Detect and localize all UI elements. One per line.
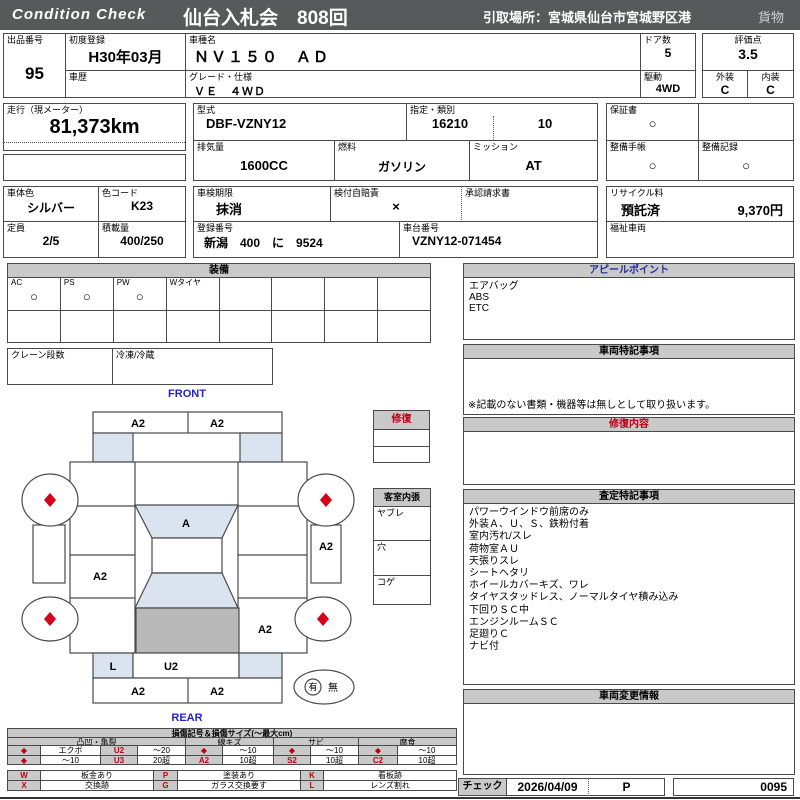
legend-desc: 20超: [137, 755, 186, 765]
assessment-line: 室内汚れ/スレ: [469, 531, 789, 543]
rear-window: [135, 573, 238, 608]
legend-desc: 10超: [222, 755, 274, 765]
legend-desc: ガラス交換要す: [177, 780, 301, 791]
equipment-cell-empty-3: [325, 277, 378, 310]
appeal-line: ABS: [469, 292, 789, 303]
equipment-cell-wtire: Wタイヤ: [167, 277, 220, 310]
color-code-label: 色コード: [99, 187, 185, 199]
warranty-book-cell: 保証書 ○: [606, 103, 699, 141]
equipment-row2-cell: [220, 311, 273, 343]
sill-right: [311, 525, 341, 583]
score-label: 評価点: [703, 34, 793, 46]
registration-number-value: 新潟 400 に 9524: [194, 234, 399, 251]
front-corner-right: [240, 433, 282, 462]
vehicle-change-header: 車両変更情報: [464, 690, 794, 704]
legend-code: S2: [273, 755, 311, 765]
registration-number-label: 登録番号: [194, 222, 399, 234]
exterior-grade-cell: 外装 C: [702, 70, 748, 98]
check-label-cell: チェック: [458, 778, 507, 796]
front-corner-left: [93, 433, 133, 462]
equipment-row2-cell: [272, 311, 325, 343]
equipment-mark-ac: ○: [8, 289, 60, 304]
spare-yes-label: 有: [308, 681, 317, 692]
capacity-label: 定員: [4, 222, 98, 234]
vehicle-change-box: 車両変更情報: [463, 689, 795, 775]
panel-label-rear-door-left: A2: [93, 571, 107, 583]
cargo-tag: 貨物: [758, 7, 784, 26]
equipment-mark-ps: ○: [61, 289, 113, 304]
vehicle-notes-header: 車両特記事項: [464, 345, 794, 359]
grade-label: グレード・仕様: [186, 71, 640, 83]
recycle-fee-cell: リサイクル料 預託済 9,370円: [606, 186, 794, 222]
recycle-status-value: 預託済: [621, 200, 660, 219]
transmission-label: ミッション: [470, 141, 597, 153]
check-date-cell: 2026/04/09: [506, 778, 589, 796]
warranty-book-mark: ○: [607, 116, 698, 131]
panel-label-front-bumper-left: A2: [131, 418, 145, 430]
reefer-label: 冷凍/冷蔵: [113, 349, 272, 361]
grade-cell: グレード・仕様 ＶＥ ４ＷＤ: [185, 70, 641, 98]
doors-value: 5: [641, 46, 695, 60]
repair-details-header: 修復内容: [464, 418, 794, 432]
spare-no-label: 無: [328, 681, 338, 694]
equipment-row2-cell: [378, 311, 430, 343]
model-name-label: 車種名: [186, 34, 640, 46]
lot-number-value: 95: [4, 64, 65, 84]
load-capacity-value: 400/250: [99, 234, 185, 248]
displacement-cell: 排気量 1600CC: [193, 140, 335, 181]
assessment-line: 天張りスレ: [469, 556, 789, 568]
recycle-fee-value: 9,370円: [737, 200, 783, 219]
model-code-value: DBF-VZNY12: [194, 116, 406, 131]
assessment-notes-header: 査定特記事項: [464, 490, 794, 504]
doors-label: ドア数: [641, 34, 695, 46]
model-code-label: 型式: [194, 104, 406, 116]
equipment-cell-empty-2: [272, 277, 325, 310]
body-color-value: シルバー: [4, 199, 98, 216]
repair-mini-header: 修復: [374, 411, 429, 430]
assessment-line: 外装Ａ、Ｕ、Ｓ、鉄粉付着: [469, 519, 789, 531]
vehicle-notes-footnote: ※記載のない書類・機器等は無しとして取り扱います。: [468, 396, 715, 411]
equipment-cell-pw: PW ○: [114, 277, 167, 310]
car-history-label: 車歴: [66, 71, 185, 83]
exterior-grade-label: 外装: [703, 71, 747, 83]
legend-code: A2: [185, 755, 223, 765]
first-registration-value: H30年03月: [66, 46, 185, 67]
repair-details-box: 修復内容: [463, 417, 795, 485]
legend-desc: レンズ割れ: [323, 780, 457, 791]
pickup-location: 引取場所：宮城県仙台市宮城野区港: [483, 7, 691, 26]
assessment-line: 下回りＳＣ中: [469, 605, 789, 617]
maintenance-book-cell: 整備手帳 ○: [606, 140, 699, 181]
mileage-label: 走行（現メーター）: [4, 104, 185, 116]
doors-cell: ドア数 5: [640, 33, 696, 71]
assessment-line: ホイールカバーキズ、ワレ: [469, 580, 789, 592]
spare-tire-indicator: [294, 670, 354, 704]
equipment-cell-ac: AC ○: [8, 277, 61, 310]
warranty-book-label: 保証書: [607, 104, 698, 116]
capacity-cell: 定員 2/5: [3, 221, 99, 258]
first-registration-label: 初度登録: [66, 34, 185, 46]
score-cell: 評価点 3.5: [702, 33, 794, 71]
transmission-value: AT: [470, 158, 597, 173]
model-name-value: ＮＶ１５０ ＡＤ: [186, 46, 640, 67]
equipment-cell-ps: PS ○: [61, 277, 114, 310]
vehicle-notes-box: 車両特記事項 ※記載のない書類・機器等は無しとして取り扱います。: [463, 344, 795, 415]
appeal-line: ETC: [469, 303, 789, 314]
lot-number-cell: 出品番号 95: [3, 33, 66, 98]
score-value: 3.5: [703, 46, 793, 62]
equipment-mark-pw: ○: [114, 289, 166, 304]
cabin-lining-header: 客室内張: [374, 489, 430, 507]
maintenance-record-label: 整備記録: [699, 141, 793, 153]
maintenance-record-mark: ○: [699, 158, 793, 173]
lining-hole-label: 穴: [374, 541, 430, 553]
legend-code: U3: [100, 755, 138, 765]
roof-panel: [152, 538, 222, 573]
body-color-cell: 車体色 シルバー: [3, 186, 99, 222]
interior-grade-value: C: [748, 83, 793, 97]
cabin-lining-box: 客室内張 ヤブレ 穴 コゲ: [373, 488, 431, 605]
registration-number-cell: 登録番号 新潟 400 に 9524: [193, 221, 400, 258]
load-capacity-label: 積載量: [99, 222, 185, 234]
inspection-cell: 車検期限 抹消: [193, 186, 331, 222]
legend-desc: 10超: [310, 755, 359, 765]
panel-label-rear-center: U2: [164, 661, 178, 673]
fuel-value: ガソリン: [335, 158, 469, 175]
maintenance-record-cell: 整備記録 ○: [698, 140, 794, 181]
reefer-cell: 冷凍/冷蔵: [112, 348, 273, 385]
warranty-empty-cell: [698, 103, 794, 141]
front-label: FRONT: [87, 388, 287, 400]
crane-stages-cell: クレーン段数: [7, 348, 113, 385]
assessment-line: パワーウインドウ前席のみ: [469, 507, 789, 519]
interior-grade-cell: 内装 C: [747, 70, 794, 98]
crane-stages-label: クレーン段数: [8, 349, 112, 361]
assessment-line: シートヘタリ: [469, 568, 789, 580]
header-bar: Condition Check 仙台入札会 808回 引取場所：宮城県仙台市宮城…: [0, 0, 800, 30]
condition-check-logo: Condition Check: [12, 6, 146, 23]
welfare-vehicle-label: 福祉車両: [607, 222, 793, 234]
panel-label-rear-left: L: [110, 661, 117, 673]
damage-legend-table: 損傷記号＆損傷サイズ(〜最大cm) 凸凹・亀裂 線キズ サビ 腐食 ◆ エクボ …: [7, 728, 457, 765]
appeal-points-box: アピールポイント エアバッグ ABS ETC: [463, 263, 795, 340]
legend-desc: 10超: [397, 755, 457, 765]
equipment-row2-cell: [167, 311, 220, 343]
chassis-number-label: 車台番号: [400, 222, 597, 234]
legend-diamond-icon: ◆: [7, 755, 41, 765]
displacement-value: 1600CC: [194, 158, 334, 173]
equipment-cell-empty-1: [220, 277, 273, 310]
mileage-value: 81,373km: [4, 116, 185, 143]
car-history-cell: 車歴: [65, 70, 186, 98]
equipment-header: 装備: [8, 264, 430, 278]
rear-label: REAR: [87, 712, 287, 724]
load-capacity-cell: 積載量 400/250: [98, 221, 186, 258]
approval-request-label: 承認請求書: [462, 187, 597, 199]
displacement-label: 排気量: [194, 141, 334, 153]
exterior-grade-value: C: [703, 83, 747, 97]
panel-label-rear-bumper-right: A2: [210, 686, 224, 698]
sheet-bottom-rule: [0, 797, 800, 799]
assessment-line: ナビ付: [469, 641, 789, 653]
insurance-cell: 検付自賠責 ×: [330, 186, 462, 222]
cargo-area: [136, 608, 239, 653]
appeal-line: エアバッグ: [469, 281, 789, 292]
model-code-cell: 型式 DBF-VZNY12: [193, 103, 407, 141]
recycle-fee-label: リサイクル料: [607, 187, 793, 199]
chassis-number-cell: 車台番号 VZNY12-071454: [399, 221, 598, 258]
insurance-label: 検付自賠責: [331, 187, 461, 199]
maintenance-book-mark: ○: [607, 158, 698, 173]
drive-label: 駆動: [641, 71, 695, 83]
legend-code: X: [7, 780, 41, 791]
drive-cell: 駆動 4WD: [640, 70, 696, 98]
fuel-cell: 燃料 ガソリン: [334, 140, 470, 181]
chassis-number-value: VZNY12-071454: [400, 234, 597, 248]
legend-code: G: [153, 780, 178, 791]
class-value-1: 16210: [407, 116, 493, 131]
lining-tear-label: ヤブレ: [374, 507, 430, 519]
legend-desc: 交換跡: [40, 780, 154, 791]
capacity-value: 2/5: [4, 234, 98, 248]
mileage-cell: 走行（現メーター） 81,373km: [3, 103, 186, 151]
grade-value: ＶＥ ４ＷＤ: [186, 83, 640, 99]
legend-code: L: [300, 780, 324, 791]
damage-code-table: W 板金あり P 塗装あり K 看板跡 X 交換跡 G ガラス交換要す L レン…: [7, 770, 457, 792]
car-damage-diagram: A2 A2 A A2 A2 A2 L U2 A2 A2 有 無: [5, 402, 370, 714]
class-value-2: 10: [493, 116, 597, 131]
color-code-value: K23: [99, 199, 185, 213]
approval-request-cell: 承認請求書: [461, 186, 598, 222]
check-number-cell: 0095: [673, 778, 794, 796]
equipment-table: 装備 AC ○ PS ○ PW ○ Wタイヤ: [7, 263, 431, 343]
panel-label-windshield: A: [182, 518, 190, 530]
drive-value: 4WD: [641, 83, 695, 95]
assessment-line: 足廻りＣ: [469, 629, 789, 641]
legend-code: C2: [358, 755, 398, 765]
panel-label-rear-bumper-left: A2: [131, 686, 145, 698]
equipment-row2-cell: [8, 311, 61, 343]
lining-burn-label: コゲ: [374, 576, 430, 588]
model-name-cell: 車種名 ＮＶ１５０ ＡＤ: [185, 33, 641, 71]
sill-left: [33, 525, 65, 583]
rear-panel-right: [239, 653, 282, 678]
equipment-row2-cell: [61, 311, 114, 343]
class-cell: 指定・類別 16210 10: [406, 103, 598, 141]
class-label: 指定・類別: [407, 104, 597, 116]
appeal-points-header: アピールポイント: [464, 264, 794, 278]
check-mark-cell: P: [588, 778, 665, 796]
assessment-line: タイヤスタッドレス、ノーマルタイヤ積み込み: [469, 592, 789, 604]
interior-grade-label: 内装: [748, 71, 793, 83]
equipment-row2-cell: [325, 311, 378, 343]
color-code-cell: 色コード K23: [98, 186, 186, 222]
repair-mini-box: 修復: [373, 410, 430, 463]
legend-desc: 〜10: [40, 755, 101, 765]
equipment-row2-cell: [114, 311, 167, 343]
body-color-label: 車体色: [4, 187, 98, 199]
inspection-value: 抹消: [194, 199, 330, 218]
panel-label-sill-right: A2: [319, 541, 333, 553]
equipment-cell-empty-4: [378, 277, 430, 310]
mileage-extra-cell: [3, 154, 186, 181]
rear-panel-center: [133, 653, 239, 678]
lot-number-label: 出品番号: [4, 34, 65, 46]
maintenance-book-label: 整備手帳: [607, 141, 698, 153]
auction-title: 仙台入札会 808回: [183, 3, 348, 30]
panel-label-quarter-right: A2: [258, 624, 272, 636]
panel-label-front-bumper-right: A2: [210, 418, 224, 430]
insurance-mark: ×: [331, 199, 461, 214]
assessment-notes-box: 査定特記事項 パワーウインドウ前席のみ 外装Ａ、Ｕ、Ｓ、鉄粉付着 室内汚れ/スレ…: [463, 489, 795, 685]
transmission-cell: ミッション AT: [469, 140, 598, 181]
assessment-line: 荷物室ＡＵ: [469, 544, 789, 556]
welfare-vehicle-cell: 福祉車両: [606, 221, 794, 258]
assessment-line: エンジンルームＳＣ: [469, 617, 789, 629]
first-registration-cell: 初度登録 H30年03月: [65, 33, 186, 71]
fuel-label: 燃料: [335, 141, 469, 153]
inspection-label: 車検期限: [194, 187, 330, 199]
